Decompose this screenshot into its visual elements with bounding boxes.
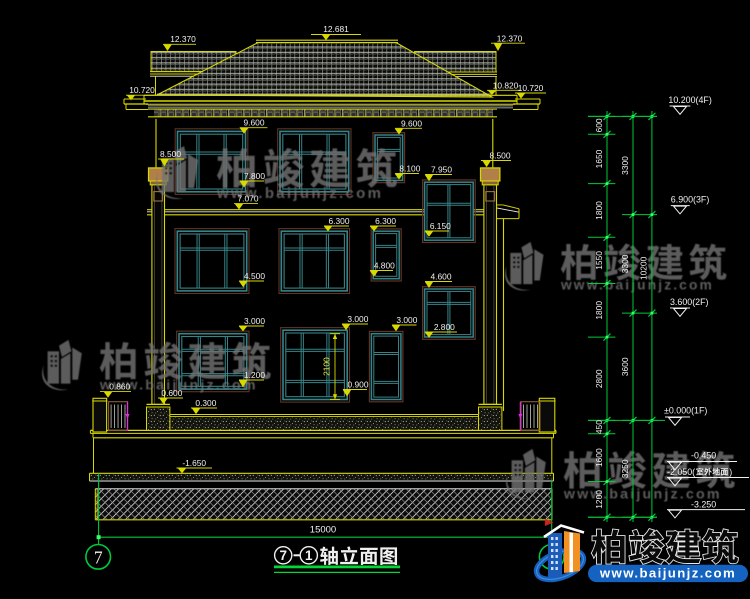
svg-text:0.300: 0.300 <box>195 398 216 408</box>
svg-text:8.500: 8.500 <box>160 149 181 159</box>
svg-text:2.800: 2.800 <box>434 322 455 332</box>
svg-text:7.800: 7.800 <box>244 171 265 181</box>
svg-text:4.500: 4.500 <box>244 271 265 281</box>
svg-text:0.860: 0.860 <box>109 382 130 392</box>
svg-text:4.800: 4.800 <box>374 261 395 271</box>
svg-text:1: 1 <box>305 548 313 563</box>
svg-text:3250: 3250 <box>620 459 630 478</box>
svg-text:0.900: 0.900 <box>348 380 369 390</box>
svg-text:7.070: 7.070 <box>238 194 259 204</box>
svg-text:8.100: 8.100 <box>399 164 420 174</box>
svg-text:10200: 10200 <box>639 256 649 280</box>
svg-text:3.000: 3.000 <box>244 316 265 326</box>
svg-text:1200: 1200 <box>594 490 604 509</box>
svg-text:-0.450: -0.450 <box>691 450 716 460</box>
svg-text:6.150: 6.150 <box>430 221 451 231</box>
svg-text:10.200(4F): 10.200(4F) <box>668 95 711 105</box>
svg-text:9.600: 9.600 <box>401 118 422 128</box>
svg-text:-3.250: -3.250 <box>691 500 716 510</box>
svg-text:1800: 1800 <box>594 201 604 220</box>
svg-text:3.000: 3.000 <box>347 314 368 324</box>
svg-text:): ) <box>729 467 732 477</box>
svg-text:3300: 3300 <box>620 156 630 175</box>
svg-text:2100: 2100 <box>322 357 332 376</box>
svg-text:3600: 3600 <box>620 357 630 376</box>
svg-text:6.300: 6.300 <box>375 216 396 226</box>
svg-text:600: 600 <box>594 118 604 132</box>
svg-text:3.000: 3.000 <box>396 315 417 325</box>
svg-text:9.600: 9.600 <box>244 118 265 128</box>
svg-text:-1.650: -1.650 <box>182 458 206 468</box>
svg-text:3300: 3300 <box>620 254 630 273</box>
svg-text:www.baijunjz.com: www.baijunjz.com <box>599 566 736 581</box>
svg-text:1600: 1600 <box>594 448 604 467</box>
svg-text:7.950: 7.950 <box>431 165 452 175</box>
svg-text:www.baijunjz.com: www.baijunjz.com <box>560 278 714 293</box>
svg-text:3.600(2F): 3.600(2F) <box>670 297 709 307</box>
svg-text:6.900(3F): 6.900(3F) <box>671 195 710 205</box>
svg-text:450: 450 <box>594 420 604 434</box>
svg-text:±0.000(1F): ±0.000(1F) <box>664 406 707 416</box>
svg-text:10.720: 10.720 <box>518 83 544 93</box>
svg-text:10.820: 10.820 <box>493 81 519 91</box>
svg-text:10.720: 10.720 <box>129 85 155 95</box>
svg-text:6.300: 6.300 <box>329 216 350 226</box>
svg-text:7: 7 <box>94 548 103 568</box>
svg-text:4.600: 4.600 <box>431 272 452 282</box>
svg-text:1650: 1650 <box>594 149 604 168</box>
svg-text:1550: 1550 <box>594 251 604 270</box>
svg-text:8.500: 8.500 <box>490 151 511 161</box>
svg-text:1800: 1800 <box>594 301 604 320</box>
svg-text:0.600: 0.600 <box>161 388 182 398</box>
svg-text:12.370: 12.370 <box>170 34 196 44</box>
svg-text:2800: 2800 <box>594 369 604 388</box>
svg-text:12.370: 12.370 <box>497 34 523 44</box>
svg-text:-2.050(: -2.050( <box>667 467 695 477</box>
svg-text:12.681: 12.681 <box>323 24 349 34</box>
svg-text:15000: 15000 <box>310 525 336 536</box>
svg-text:7: 7 <box>279 548 287 563</box>
svg-text:1.200: 1.200 <box>244 370 265 380</box>
